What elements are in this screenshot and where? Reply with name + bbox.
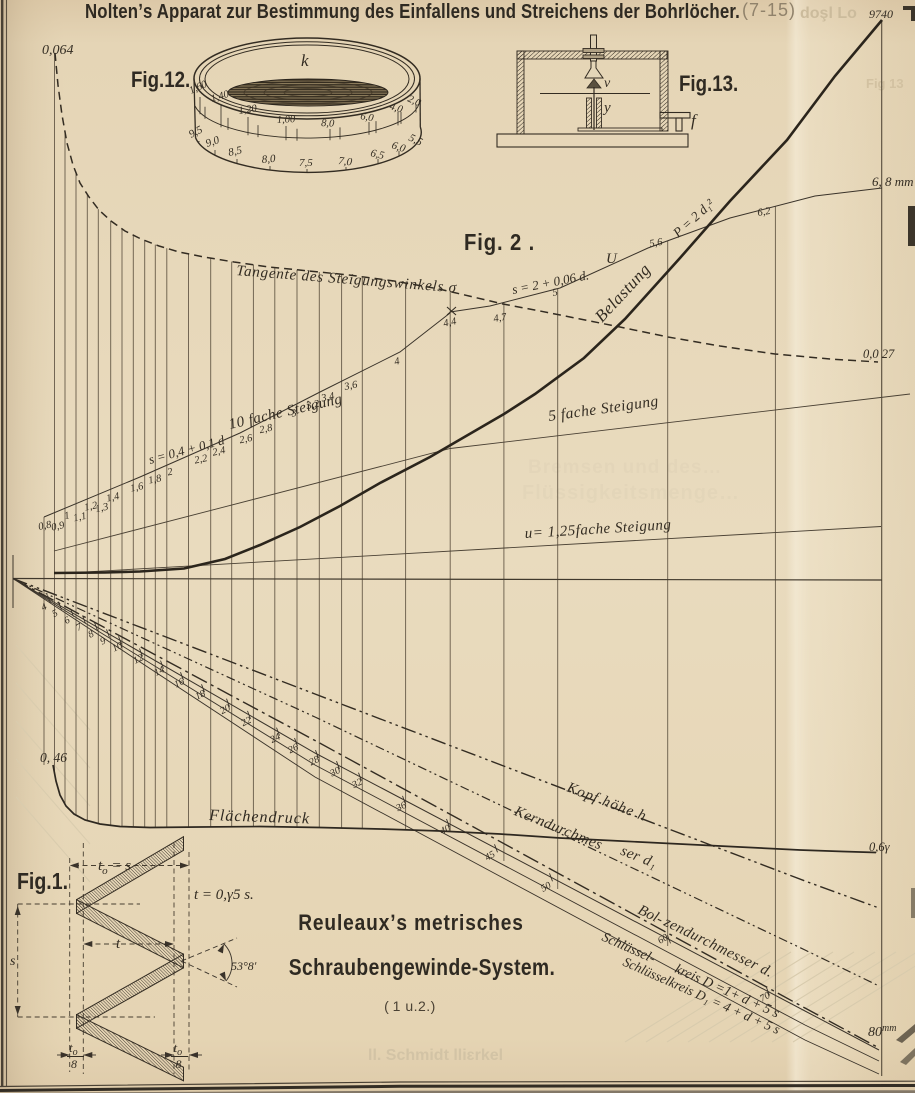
- svg-text:s: s: [10, 954, 16, 969]
- svg-text:Fig.13.: Fig.13.: [679, 73, 738, 97]
- svg-text:7,5: 7,5: [299, 157, 313, 169]
- svg-text:doşl Lo: doşl Lo: [800, 5, 857, 22]
- svg-text:Noltenʼs Apparat zur Bestimmu: Noltenʼs Apparat zur Bestimmung des Einf…: [85, 0, 740, 22]
- svg-text:Flüssigkeitsmenge…: Flüssigkeitsmenge…: [522, 482, 740, 504]
- svg-text:( 1 u.2.): ( 1 u.2.): [384, 998, 436, 1014]
- svg-text:8,0: 8,0: [321, 118, 335, 130]
- svg-text:(7-15): (7-15): [742, 0, 796, 20]
- svg-text:0, 46: 0, 46: [40, 750, 67, 765]
- svg-text:8: 8: [71, 1057, 77, 1071]
- svg-text:0,6γ: 0,6γ: [869, 840, 891, 854]
- svg-text:8: 8: [176, 1057, 182, 1071]
- svg-text:t = 0,γ5 s.: t = 0,γ5 s.: [194, 887, 254, 903]
- svg-text:7,0: 7,0: [338, 155, 353, 168]
- svg-text:0,0 27: 0,0 27: [863, 347, 895, 361]
- svg-text:ll. Schmidt lliɛrkel: ll. Schmidt lliɛrkel: [368, 1047, 503, 1064]
- svg-text:U: U: [606, 251, 618, 267]
- svg-text:Schraubengewinde-System.: Schraubengewinde-System.: [289, 954, 556, 980]
- svg-text:9740: 9740: [869, 7, 893, 21]
- svg-text:53°8ʹ: 53°8ʹ: [231, 959, 257, 973]
- svg-text:1,00: 1,00: [277, 114, 297, 126]
- svg-text:v: v: [604, 76, 611, 91]
- svg-text:Reuleauxʼs metrisches: Reuleauxʼs metrisches: [298, 911, 524, 936]
- svg-text:Fig.1.: Fig.1.: [17, 869, 68, 895]
- svg-text:8,0: 8,0: [261, 153, 276, 166]
- svg-text:Fig 13: Fig 13: [866, 76, 904, 91]
- svg-text:y: y: [602, 100, 611, 116]
- svg-text:6, 8 mm: 6, 8 mm: [872, 174, 914, 189]
- svg-text:Fig. 2 .: Fig. 2 .: [464, 229, 535, 256]
- svg-text:Bremsen und des…: Bremsen und des…: [528, 457, 722, 478]
- svg-text:k: k: [301, 51, 309, 70]
- svg-text:Flächendruck: Flächendruck: [208, 807, 310, 828]
- svg-text:0,064: 0,064: [42, 43, 74, 58]
- svg-text:Fig.12.: Fig.12.: [131, 69, 190, 93]
